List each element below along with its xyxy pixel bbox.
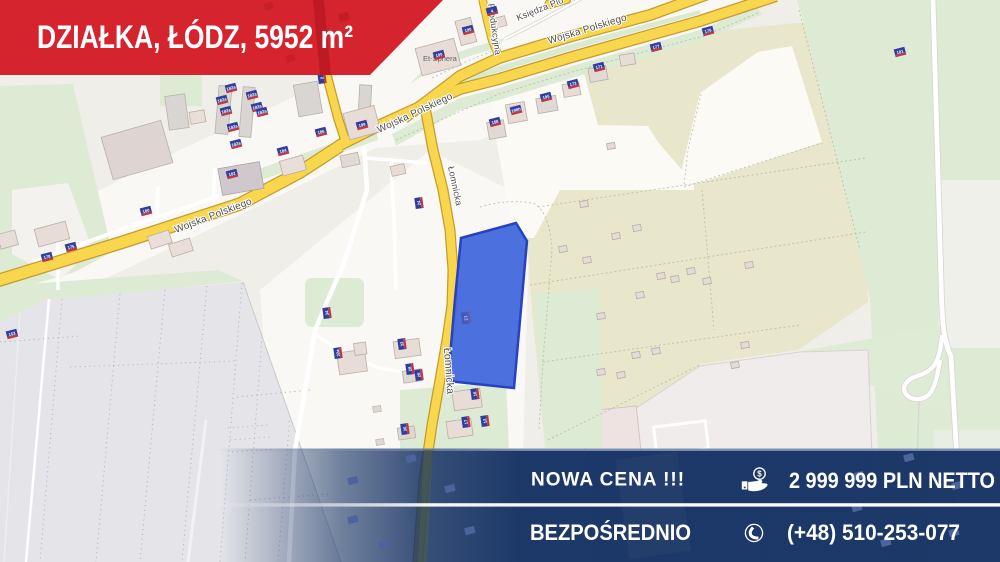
svg-text:BEZPOŚREDNIO: BEZPOŚREDNIO [530,520,691,545]
svg-text:$: $ [757,470,762,479]
svg-text:2 999 999 PLN NETTO: 2 999 999 PLN NETTO [789,468,995,493]
svg-text:32a: 32a [335,349,341,357]
svg-text:NOWA CENA !!!: NOWA CENA !!! [531,470,685,491]
svg-text:(+48) 510-253-077: (+48) 510-253-077 [787,520,960,545]
svg-text:DZIAŁKA, ŁÓDZ, 5952 m²: DZIAŁKA, ŁÓDZ, 5952 m² [37,19,353,55]
